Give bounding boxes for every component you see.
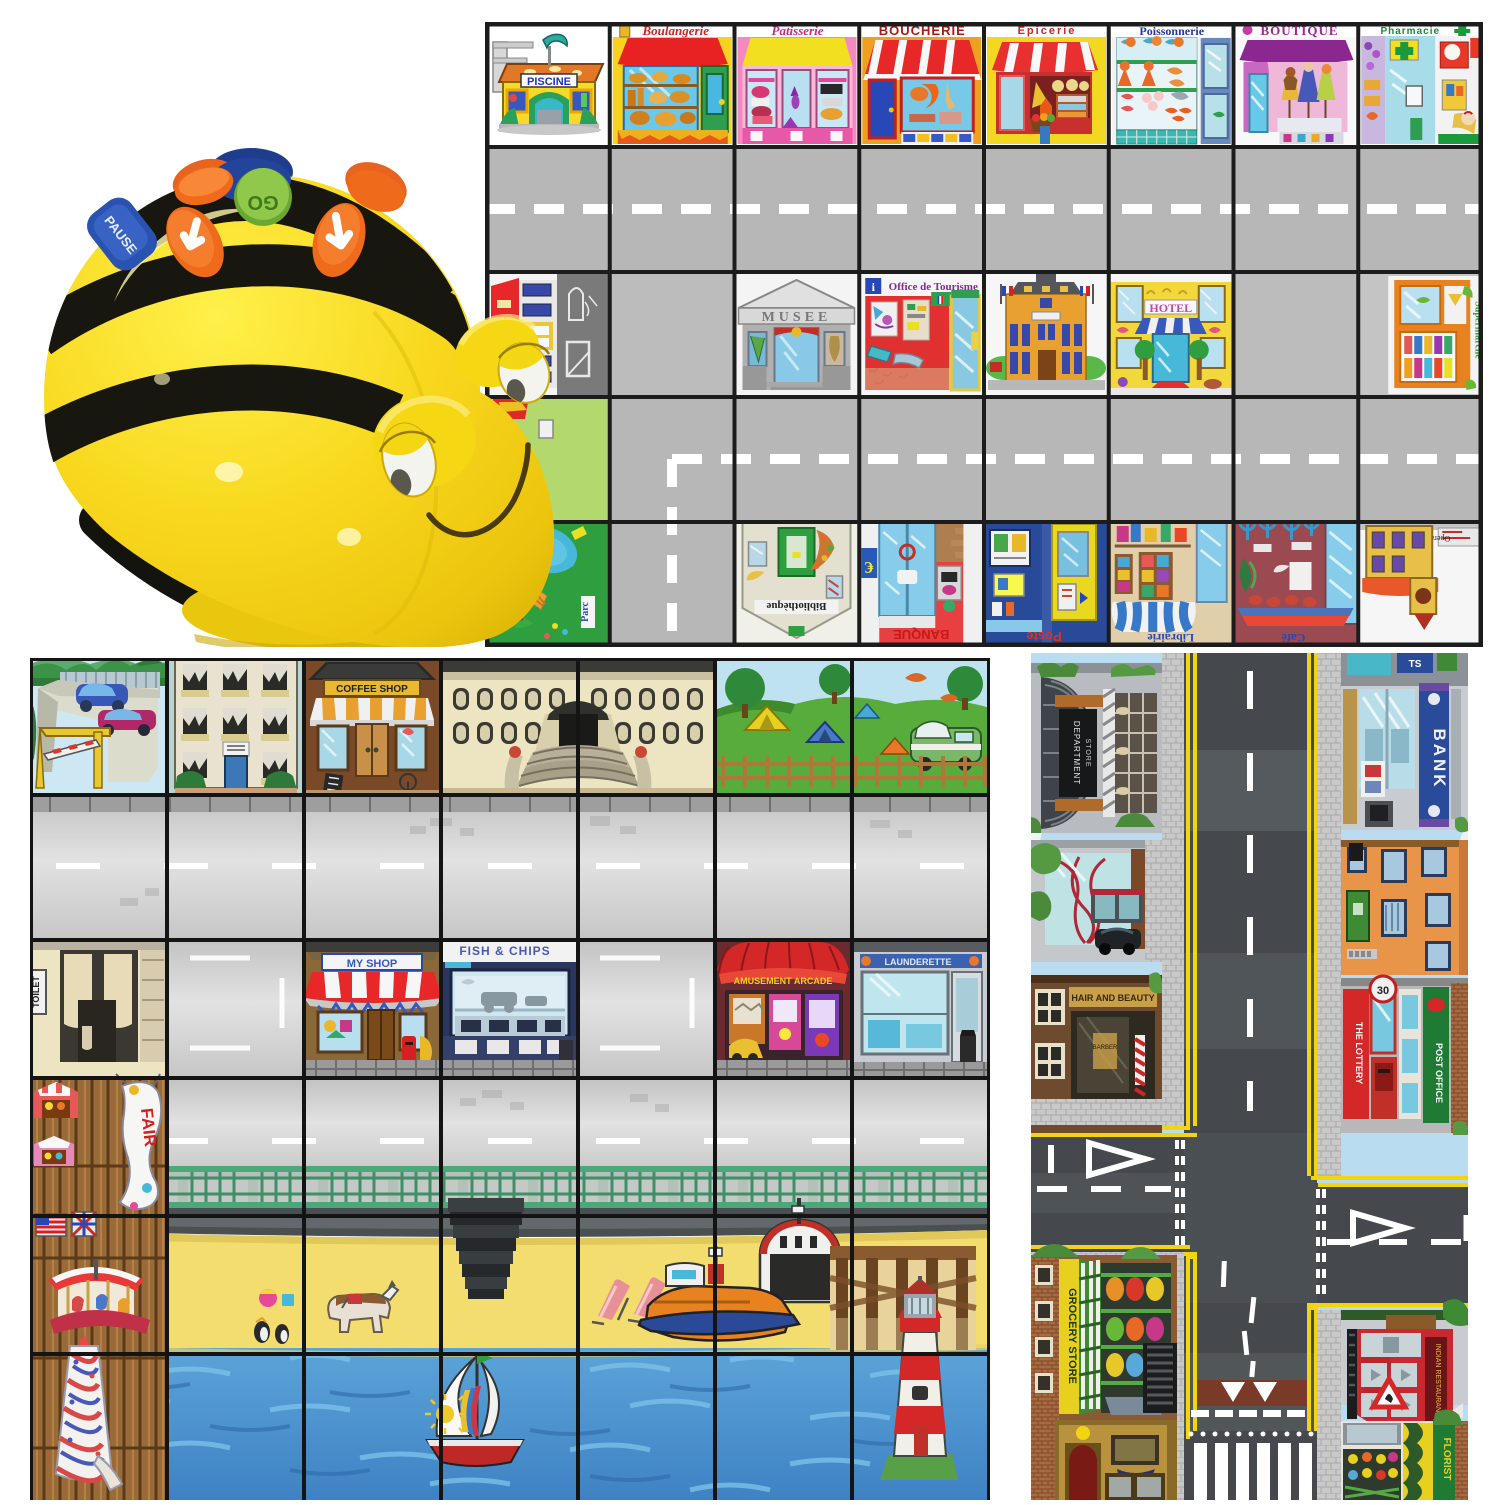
svg-text:Opera: Opera [1430, 534, 1450, 543]
svg-text:Epicerie: Epicerie [1018, 25, 1077, 37]
svg-text:MUSEE: MUSEE [762, 310, 832, 325]
svg-text:GROCERY STORE: GROCERY STORE [1066, 1288, 1078, 1384]
svg-text:THE LOTTERY: THE LOTTERY [1354, 1022, 1364, 1084]
svg-text:DEPARTMENT: DEPARTMENT [1072, 721, 1081, 785]
svg-text:BANQUE: BANQUE [893, 627, 950, 642]
svg-text:HAIR AND BEAUTY: HAIR AND BEAUTY [1071, 993, 1154, 1003]
svg-text:BARBER: BARBER [1093, 1045, 1118, 1051]
svg-text:PISCINE: PISCINE [527, 76, 571, 88]
svg-text:FISH & CHIPS: FISH & CHIPS [459, 944, 550, 958]
svg-text:Pharmacie: Pharmacie [1380, 26, 1440, 37]
svg-text:TS: TS [1409, 659, 1422, 670]
svg-text:HOTEL: HOTEL [1149, 301, 1192, 315]
svg-text:FLORIST: FLORIST [1441, 1438, 1452, 1481]
svg-text:Bibliothèque: Bibliothèque [766, 600, 826, 612]
svg-text:Poste: Poste [1026, 629, 1061, 644]
svg-text:LAUNDERETTE: LAUNDERETTE [885, 957, 952, 967]
svg-text:30: 30 [1377, 985, 1389, 997]
svg-text:MY SHOP: MY SHOP [347, 958, 398, 970]
svg-text:BANK: BANK [1430, 728, 1449, 789]
svg-text:POST OFFICE: POST OFFICE [1434, 1043, 1444, 1103]
svg-text:€: € [865, 558, 874, 577]
svg-text:COFFEE SHOP: COFFEE SHOP [336, 684, 408, 695]
svg-text:AMUSEMENT ARCADE: AMUSEMENT ARCADE [734, 976, 833, 986]
svg-text:FAIR: FAIR [137, 1107, 160, 1148]
svg-text:GO: GO [247, 191, 278, 213]
svg-text:STORE: STORE [1084, 739, 1091, 768]
svg-text:Parc: Parc [580, 602, 591, 622]
svg-text:INDIAN RESTAURANT: INDIAN RESTAURANT [1434, 1344, 1441, 1417]
